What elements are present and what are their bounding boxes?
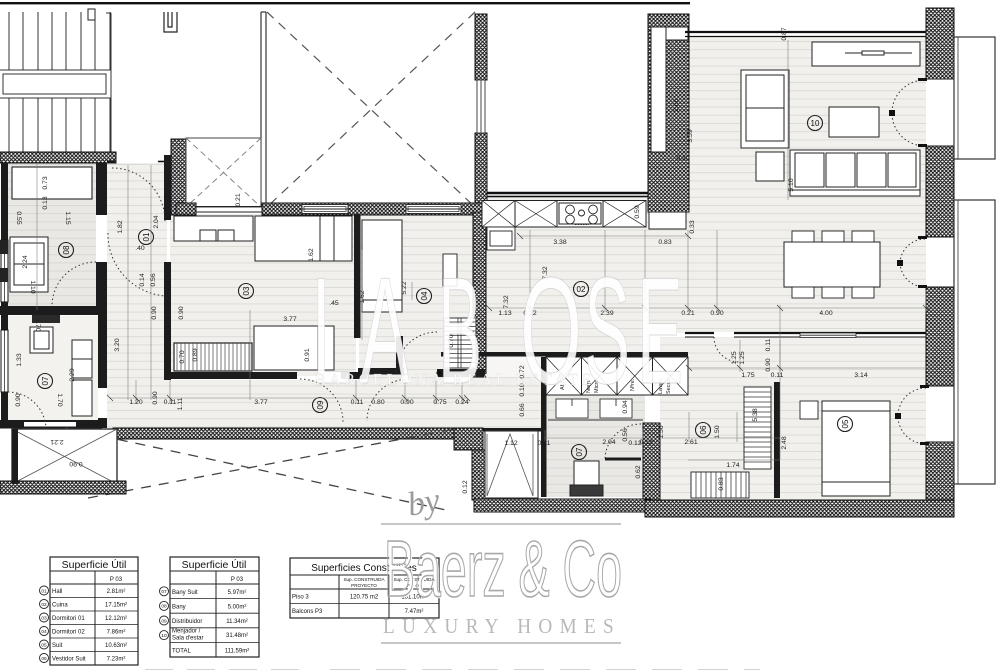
svg-text:0.33: 0.33 [689, 220, 696, 233]
svg-text:04: 04 [420, 291, 429, 300]
svg-text:0.11: 0.11 [164, 399, 177, 406]
svg-text:P 03: P 03 [231, 577, 244, 583]
svg-text:1.10: 1.10 [29, 280, 36, 293]
svg-text:0.90: 0.90 [765, 358, 772, 371]
svg-text:L: L [312, 246, 352, 416]
svg-text:01: 01 [41, 588, 47, 594]
svg-text:Superficie Útil: Superficie Útil [182, 558, 247, 571]
svg-text:1.20: 1.20 [129, 399, 142, 406]
svg-text:Cuina: Cuina [52, 603, 68, 609]
svg-text:0.83: 0.83 [718, 477, 725, 490]
svg-text:0.12: 0.12 [628, 440, 641, 447]
svg-text:5.00m²: 5.00m² [228, 605, 247, 611]
svg-text:1.25: 1.25 [739, 351, 746, 364]
svg-text:0.56: 0.56 [150, 273, 157, 286]
svg-text:3.59: 3.59 [687, 129, 694, 142]
svg-text:08: 08 [161, 604, 167, 610]
svg-text:11.34m²: 11.34m² [226, 619, 248, 625]
svg-text:Piso 3: Piso 3 [292, 595, 309, 601]
svg-text:Superficie Útil: Superficie Útil [62, 558, 127, 571]
svg-text:0.55: 0.55 [15, 211, 22, 224]
svg-text:3.20: 3.20 [114, 338, 121, 351]
svg-text:10: 10 [161, 633, 167, 639]
svg-text:2.61: 2.61 [684, 439, 697, 446]
svg-text:07: 07 [161, 589, 167, 595]
svg-text:Sup. CONSTRUIDA: Sup. CONSTRUIDA [343, 577, 385, 582]
svg-text:0.83: 0.83 [658, 239, 671, 246]
svg-text:Dormitori 02: Dormitori 02 [52, 630, 85, 636]
svg-text:A: A [360, 246, 410, 416]
svg-text:Bany Suit: Bany Suit [172, 590, 198, 596]
svg-text:0.14: 0.14 [139, 273, 146, 286]
svg-text:1.13: 1.13 [498, 310, 511, 317]
svg-text:07: 07 [575, 447, 584, 456]
svg-text:0.21: 0.21 [235, 193, 242, 206]
svg-text:09: 09 [161, 618, 167, 624]
svg-text:BARCELONA REAL ESTATE: BARCELONA REAL ESTATE [315, 370, 595, 389]
svg-text:12.12m²: 12.12m² [105, 616, 127, 622]
svg-text:120.75 m2: 120.75 m2 [350, 595, 379, 601]
svg-text:TOTAL: TOTAL [172, 649, 191, 655]
svg-text:Nºre.: Nºre. [629, 378, 636, 391]
svg-text:0.87: 0.87 [781, 27, 788, 40]
svg-text:0.96: 0.96 [13, 445, 20, 458]
svg-text:0.12: 0.12 [3, 391, 10, 404]
svg-text:0.62: 0.62 [635, 465, 642, 478]
svg-text:0.13: 0.13 [42, 196, 49, 209]
svg-text:0.90: 0.90 [152, 391, 159, 404]
svg-text:2.04: 2.04 [153, 215, 160, 228]
svg-text:111.59m²: 111.59m² [225, 649, 249, 655]
svg-text:0.89: 0.89 [192, 348, 199, 361]
svg-text:05: 05 [841, 419, 850, 428]
svg-text:2.48: 2.48 [781, 436, 788, 449]
svg-text:0.90: 0.90 [178, 306, 185, 319]
svg-text:0.30: 0.30 [676, 155, 689, 162]
svg-text:0.73: 0.73 [42, 176, 49, 189]
svg-text:PROYECTO: PROYECTO [351, 583, 377, 588]
svg-text:1.50: 1.50 [658, 425, 665, 438]
svg-text:10.63m²: 10.63m² [105, 643, 127, 649]
svg-text:02: 02 [41, 602, 47, 608]
svg-text:3.77: 3.77 [254, 399, 267, 406]
svg-text:O: O [520, 246, 582, 416]
svg-text:06: 06 [699, 425, 708, 434]
svg-text:1.75: 1.75 [741, 372, 754, 379]
svg-text:Vestidor Suit: Vestidor Suit [52, 657, 86, 663]
svg-text:Balcons P3: Balcons P3 [292, 609, 323, 615]
svg-text:1.15: 1.15 [64, 211, 71, 224]
svg-text:0.21: 0.21 [681, 310, 694, 317]
svg-text:7.86m²: 7.86m² [107, 630, 126, 636]
svg-text:3.38: 3.38 [553, 239, 566, 246]
svg-text:0.90: 0.90 [69, 460, 82, 467]
svg-text:1.11: 1.11 [177, 397, 184, 410]
svg-text:17.15m²: 17.15m² [105, 603, 127, 609]
svg-text:Bany: Bany [172, 605, 186, 611]
svg-text:0.12: 0.12 [462, 480, 469, 493]
svg-text:B: B [438, 246, 482, 416]
svg-text:10: 10 [811, 119, 820, 128]
svg-text:07: 07 [41, 376, 50, 385]
svg-text:3.77: 3.77 [283, 316, 296, 323]
svg-text:7.23m²: 7.23m² [107, 657, 126, 663]
svg-text:Suit: Suit [52, 643, 63, 649]
svg-text:08: 08 [62, 245, 71, 254]
svg-text:0.59: 0.59 [634, 205, 641, 218]
svg-text:Sala d'estar: Sala d'estar [172, 636, 204, 642]
svg-text:2.81m²: 2.81m² [107, 589, 126, 595]
svg-text:1.82: 1.82 [117, 220, 124, 233]
svg-text:2.04: 2.04 [602, 439, 615, 446]
svg-text:P 03: P 03 [110, 577, 123, 583]
svg-text:0.56: 0.56 [622, 428, 629, 441]
svg-text:1.70: 1.70 [34, 318, 41, 331]
svg-text:5.38: 5.38 [752, 408, 759, 421]
svg-text:Dormitori 01: Dormitori 01 [52, 616, 85, 622]
svg-text:1.25: 1.25 [731, 351, 738, 364]
svg-text:4.00: 4.00 [819, 310, 832, 317]
svg-text:7.32: 7.32 [503, 295, 510, 308]
svg-text:0.11: 0.11 [771, 372, 784, 379]
svg-text:1.74: 1.74 [726, 462, 739, 469]
svg-text:31.48m²: 31.48m² [226, 633, 248, 639]
svg-text:1.70: 1.70 [56, 393, 63, 406]
svg-text:Baerz & Co: Baerz & Co [384, 524, 622, 613]
svg-text:1.23: 1.23 [541, 461, 548, 474]
svg-text:2.24: 2.24 [22, 255, 29, 268]
svg-text:LUXURY HOMES: LUXURY HOMES [383, 614, 621, 638]
svg-text:1.33: 1.33 [16, 353, 23, 366]
svg-text:S: S [584, 246, 630, 416]
svg-text:05: 05 [41, 642, 47, 648]
svg-text:2.21: 2.21 [50, 438, 63, 445]
svg-text:1.12: 1.12 [504, 440, 517, 447]
svg-text:0.91: 0.91 [304, 348, 311, 361]
svg-text:03: 03 [242, 286, 251, 295]
svg-text:5.10: 5.10 [788, 178, 795, 191]
svg-text:2.29: 2.29 [69, 368, 76, 381]
svg-text:5.97m²: 5.97m² [228, 590, 247, 596]
svg-text:Menjador /: Menjador / [172, 629, 201, 635]
svg-text:0.90: 0.90 [151, 306, 158, 319]
svg-text:06: 06 [41, 656, 47, 662]
svg-text:0.70: 0.70 [179, 350, 186, 363]
svg-text:0.11: 0.11 [765, 338, 772, 351]
svg-text:01: 01 [142, 232, 151, 241]
svg-text:E: E [637, 246, 683, 416]
svg-text:0.90: 0.90 [710, 310, 723, 317]
svg-text:3.14: 3.14 [854, 372, 867, 379]
svg-text:Hall: Hall [52, 589, 62, 595]
svg-text:2.66: 2.66 [673, 98, 680, 111]
svg-text:0.11: 0.11 [538, 440, 551, 447]
svg-text:04: 04 [41, 629, 47, 635]
svg-text:.40: .40 [135, 245, 145, 252]
svg-text:0.90: 0.90 [15, 393, 22, 406]
svg-text:1.50: 1.50 [714, 425, 721, 438]
svg-text:Distribuidor: Distribuidor [172, 619, 202, 625]
svg-text:03: 03 [41, 615, 47, 621]
